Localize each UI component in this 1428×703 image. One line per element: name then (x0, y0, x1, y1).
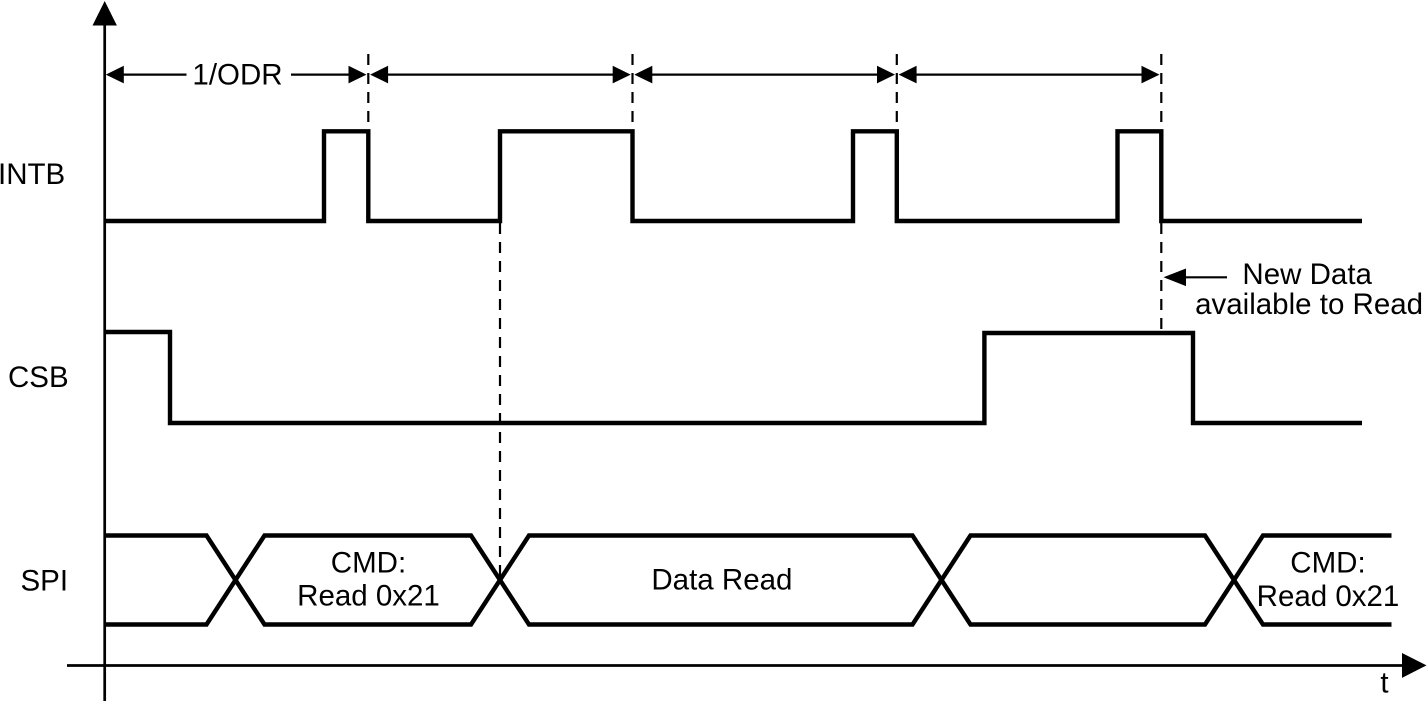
svg-text:Read 0x21: Read 0x21 (297, 580, 440, 613)
svg-text:INTB: INTB (0, 158, 65, 191)
svg-text:Read 0x21: Read 0x21 (1257, 580, 1400, 613)
svg-text:Data Read: Data Read (651, 564, 792, 597)
svg-text:CSB: CSB (8, 361, 69, 394)
svg-text:CMD:: CMD: (1290, 547, 1365, 580)
svg-text:t: t (1380, 667, 1388, 700)
svg-text:SPI: SPI (21, 565, 69, 598)
svg-text:available to Read: available to Read (1195, 288, 1423, 321)
svg-text:1/ODR: 1/ODR (192, 59, 282, 92)
svg-text:New Data: New Data (1242, 258, 1372, 291)
svg-text:CMD:: CMD: (331, 547, 406, 580)
